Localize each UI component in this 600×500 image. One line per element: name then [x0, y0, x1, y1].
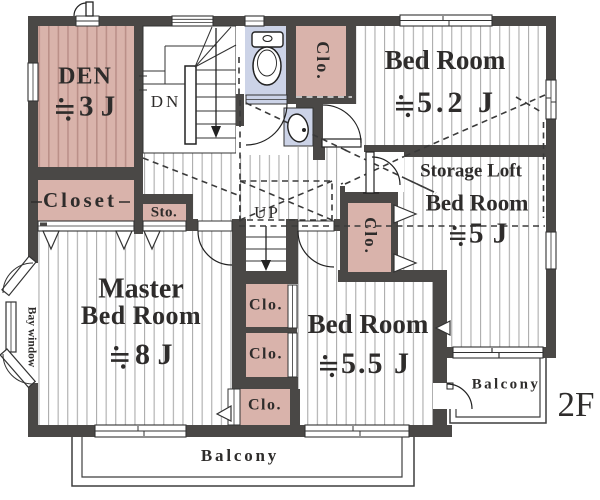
svg-text:Clo.: Clo. — [249, 346, 283, 363]
svg-text:Bay window: Bay window — [25, 307, 37, 368]
svg-text:Bed Room: Bed Room — [308, 309, 429, 339]
svg-text:UP: UP — [254, 203, 280, 222]
svg-text:Storage Loft: Storage Loft — [420, 160, 523, 181]
svg-text:5.5 J: 5.5 J — [341, 347, 411, 380]
svg-text:8 J: 8 J — [135, 338, 173, 371]
svg-text:Bed Room: Bed Room — [385, 45, 506, 75]
svg-text:3 J: 3 J — [79, 91, 115, 123]
svg-text:Bed Room: Bed Room — [81, 301, 201, 330]
svg-text:Balcony: Balcony — [472, 376, 540, 392]
svg-text:Sto.: Sto. — [151, 204, 178, 220]
svg-text:DN: DN — [151, 92, 182, 111]
svg-text:Clo.: Clo. — [249, 297, 283, 314]
svg-text:DEN: DEN — [58, 64, 112, 90]
svg-text:Clo.: Clo. — [313, 41, 333, 81]
svg-text:2F: 2F — [558, 385, 595, 424]
svg-text:Balcony: Balcony — [201, 446, 279, 465]
svg-text:Master: Master — [98, 273, 184, 304]
svg-text:Clo.: Clo. — [361, 217, 380, 255]
svg-text:5.2 J: 5.2 J — [417, 86, 497, 119]
svg-text:Bed Room: Bed Room — [426, 190, 529, 215]
svg-text:Clo.: Clo. — [248, 397, 282, 414]
svg-text:Closet: Closet — [43, 188, 117, 212]
svg-text:5 J: 5 J — [469, 218, 508, 250]
